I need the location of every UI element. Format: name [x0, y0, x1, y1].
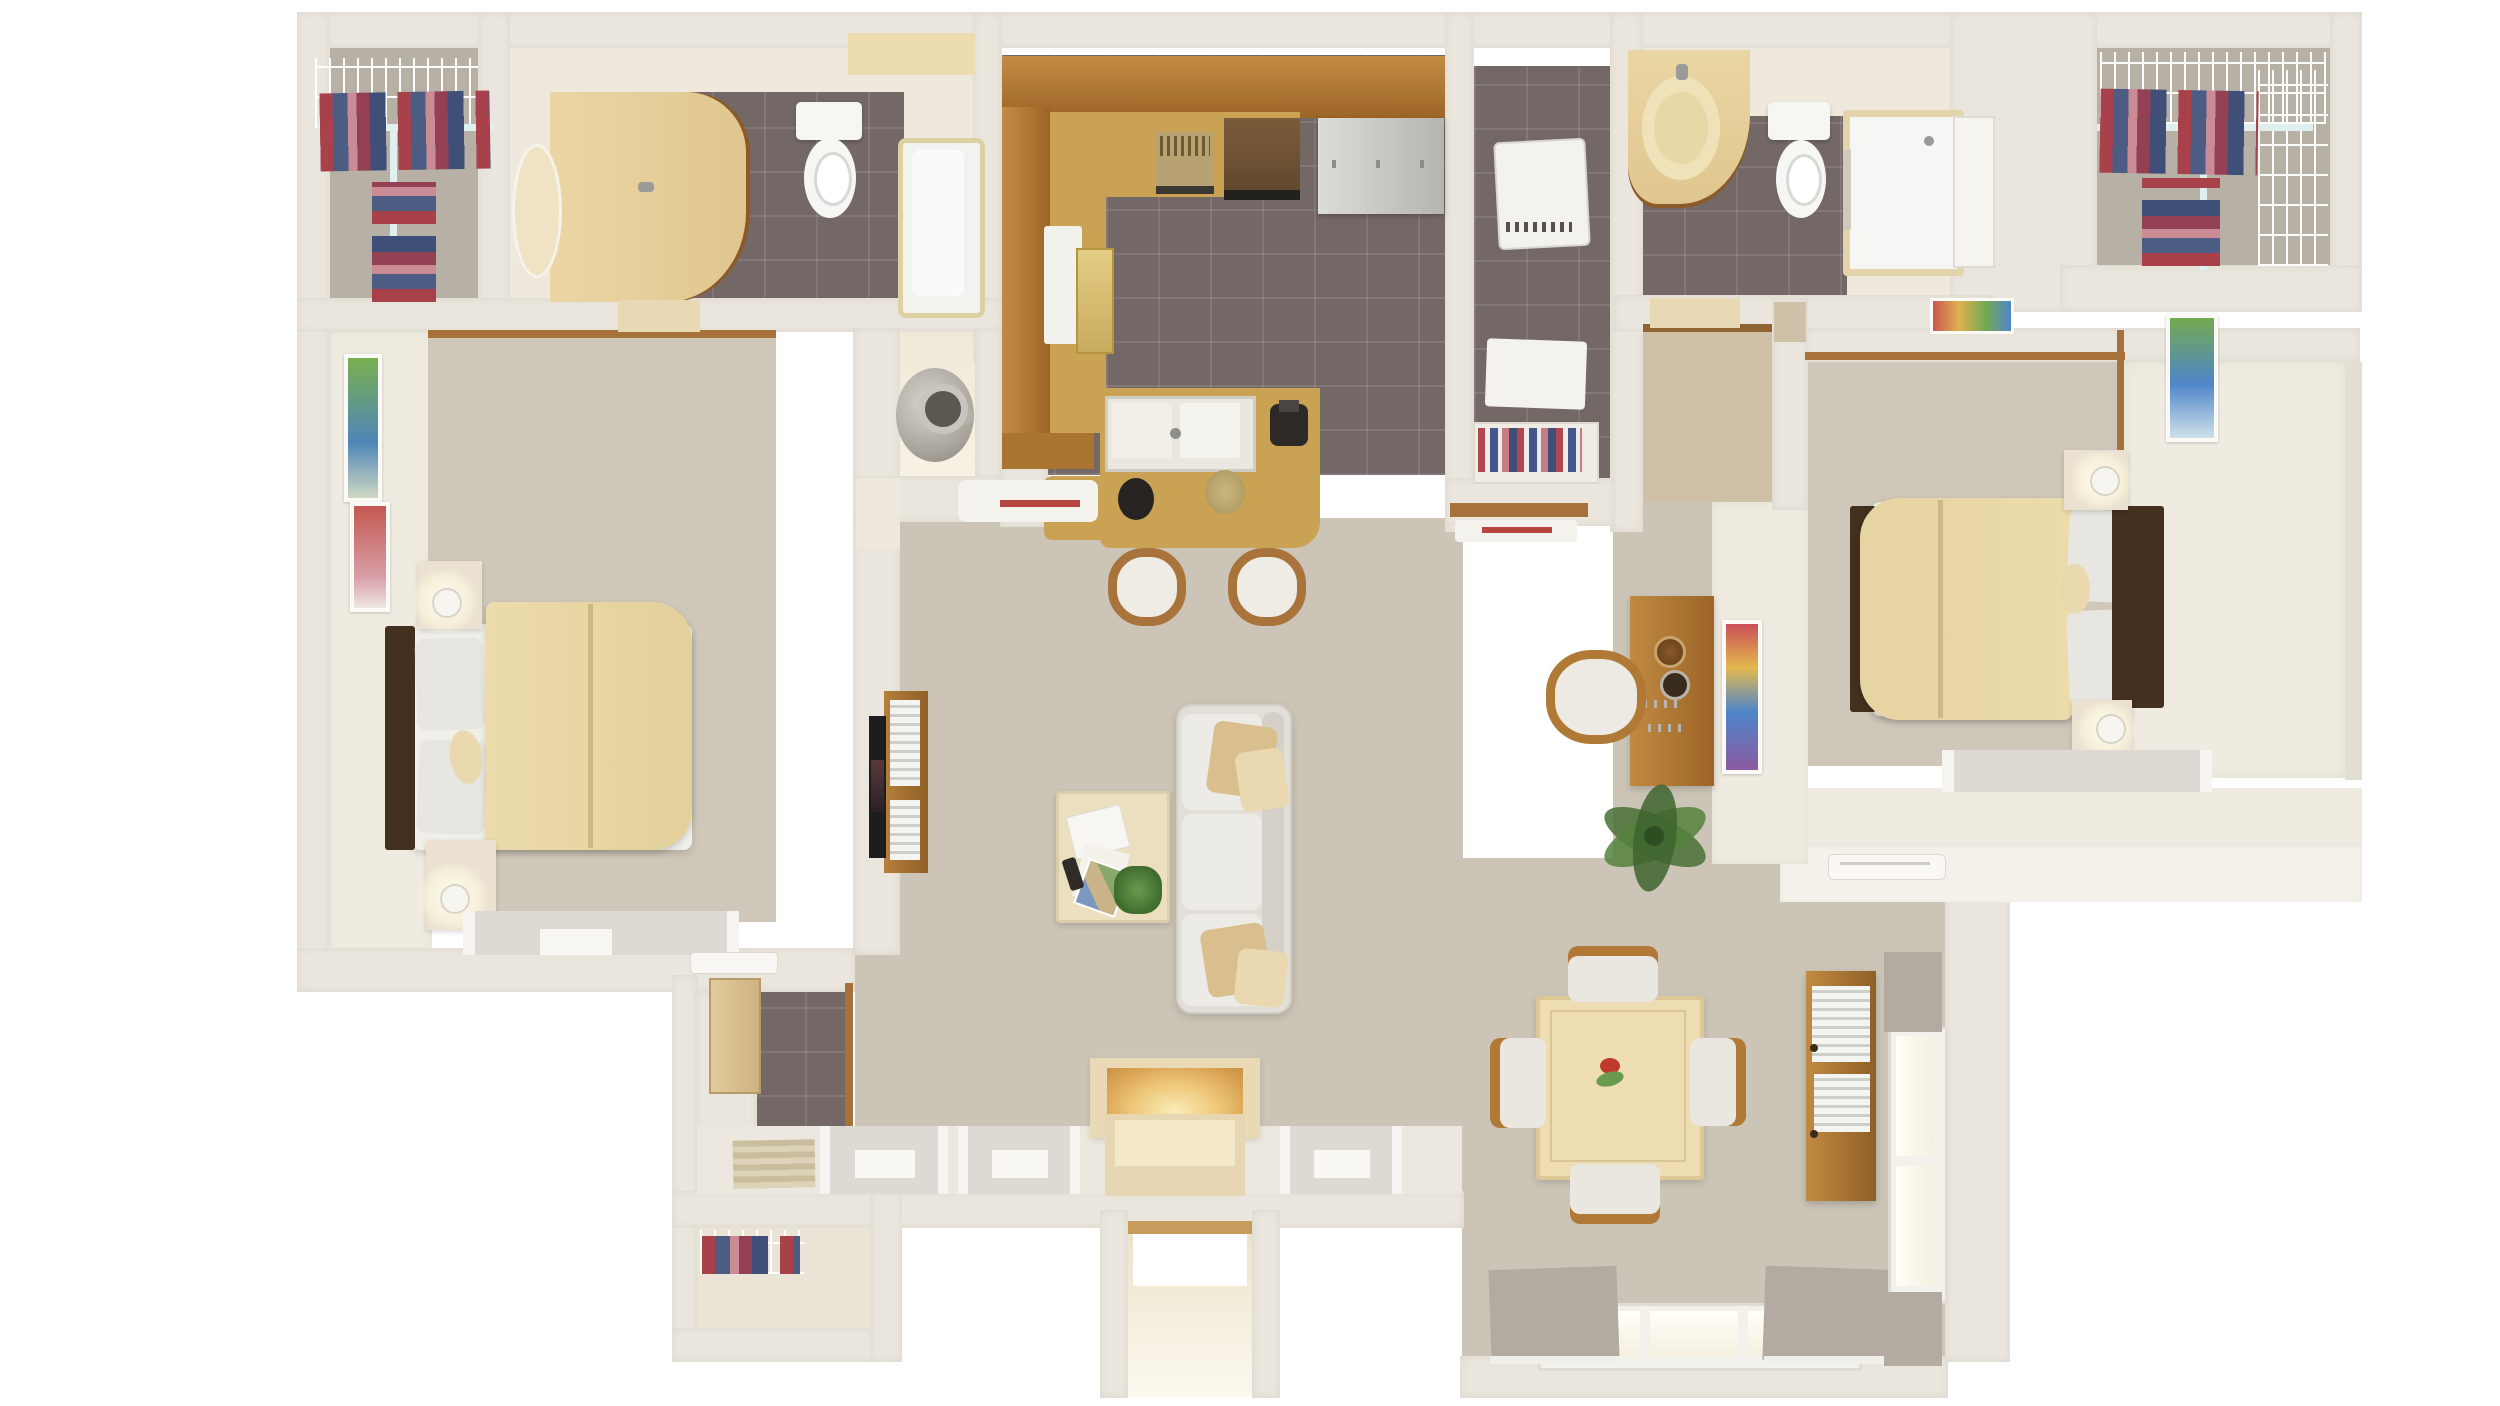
bath2-faucet: [1676, 64, 1688, 80]
laundry-threshold-stripe: [1482, 527, 1552, 533]
wall-closet3-right: [870, 1191, 902, 1362]
coffee-table-plant: [1114, 866, 1162, 914]
bedroom2-round-pillow: [2060, 564, 2090, 614]
bath1-toilet-seat: [814, 152, 852, 206]
kitchen-kettle: [1118, 478, 1154, 520]
bedroom2-blanket: [1860, 498, 2072, 720]
dining-curtain-left: [1488, 1266, 1619, 1364]
kitchen-barstool-1: [1108, 548, 1186, 626]
master-blanket-fold: [588, 604, 593, 848]
bedroom2-window-rail-r: [2200, 750, 2212, 792]
kitchen-fridge-handles: [1332, 160, 1428, 168]
laundry-washer-vents: [1506, 222, 1572, 232]
tv-console-books-1: [890, 700, 920, 786]
dining-bookshelf-books-2: [1814, 1074, 1870, 1132]
wall-closet1-bath1: [478, 12, 510, 332]
wall-closet2-bottom: [2060, 265, 2362, 312]
dining-chair-left: [1490, 1038, 1546, 1128]
master-window-sill: [540, 929, 612, 955]
south-window3-rail-r: [1392, 1126, 1402, 1194]
dining-curtain-rail-r: [1764, 1356, 1904, 1364]
ledge-tray: [1828, 854, 1946, 880]
bedroom2-window-rail-l: [1942, 750, 1954, 792]
kitchen-barstool-2: [1228, 548, 1306, 626]
laundry-washer: [1493, 138, 1591, 251]
master-window-rail-r: [727, 911, 739, 955]
kitchen-cabinets-left-base: [1002, 433, 1094, 469]
wall-alcove-left: [1100, 1210, 1128, 1398]
bath2-toilet-tank: [1768, 102, 1830, 140]
kitchen-sink-faucet: [1170, 428, 1181, 439]
wall-south-main: [672, 1191, 1464, 1228]
kitchen-stove-edge: [1224, 190, 1300, 200]
bedroom2-artwork-top: [1930, 298, 2014, 334]
laundry-tile-floor: [1474, 66, 1612, 482]
south-window2-rail-l: [958, 1126, 968, 1194]
master-lamp-2: [440, 884, 470, 914]
bath1-vanity-counter: [550, 92, 746, 302]
hall-artwork: [1722, 620, 1762, 774]
kitchen-sink-basin2: [1180, 403, 1240, 458]
trim-bedroom2-top: [1805, 352, 2125, 360]
master-wall-tray: [690, 952, 778, 974]
hall-desk-chair: [1546, 650, 1646, 744]
bath1-door-threshold: [618, 300, 700, 332]
closet2-wire-shelf-right: [2258, 70, 2328, 266]
kitchen-sink-basin1: [1112, 403, 1172, 458]
closet2-clothes-row: [2099, 89, 2258, 176]
kitchen-stove: [1224, 118, 1300, 198]
trim-entry-edge: [845, 983, 853, 1141]
fireplace-hearth-top: [1115, 1120, 1235, 1166]
wall-niche-right: [975, 328, 1002, 480]
hall-plant-center: [1644, 826, 1664, 846]
bedroom2-lamp-1: [2090, 466, 2120, 496]
bath1-toilet-tank: [796, 102, 862, 140]
closet2-clothes-col: [2142, 178, 2220, 266]
wall-alcove-right: [1252, 1210, 1280, 1398]
tv-console-books-2: [890, 800, 920, 860]
master-art-1: [344, 354, 382, 502]
kitchen-gold-cabinet: [1076, 248, 1114, 354]
entry-tile-floor: [753, 983, 845, 1141]
master-art-2: [350, 502, 390, 612]
kitchen-threshold-stripe: [1000, 500, 1080, 507]
south-window1-rail-r: [938, 1126, 948, 1194]
closet1-clothes-row: [319, 91, 490, 172]
dining-chair-bottom: [1570, 1164, 1660, 1224]
bath2-sink-inner: [1654, 92, 1708, 164]
sofa-pillow-cream-2: [1233, 948, 1289, 1009]
bath2-shower-door: [1843, 150, 1851, 230]
wall-nook-right: [1945, 896, 2010, 1362]
trim-laundry-base: [1450, 503, 1588, 517]
bedroom2-lamp-2: [2096, 714, 2126, 744]
south-window1-rail-l: [820, 1126, 830, 1194]
master-pillow-1: [414, 637, 485, 731]
niche-vase-mouth: [918, 384, 968, 434]
bedroom2-artwork: [2166, 314, 2218, 442]
dining-bookshelf-books-1: [1812, 986, 1870, 1062]
trim-master-top: [428, 330, 776, 338]
south-window3-sill: [1314, 1150, 1370, 1178]
dining-bookshelf-knob-1: [1810, 1044, 1818, 1052]
dining-curtain-rail-l: [1490, 1356, 1620, 1364]
bath2-door-threshold: [1650, 298, 1740, 328]
floor-plan-canvas: [0, 0, 2500, 1406]
dining-east-curtain-bottom: [1884, 1292, 1942, 1366]
dining-table-inner-line: [1550, 1010, 1686, 1162]
dining-south-window-pane-2: [1650, 1311, 1738, 1357]
sofa-cushion-2: [1182, 814, 1262, 910]
master-door-floor: [856, 478, 900, 548]
ledge-tray-line: [1840, 862, 1930, 865]
hallway-wood-floor: [1643, 330, 1772, 508]
kitchen-cabinets-left: [1002, 107, 1050, 433]
bath1-faucet: [638, 182, 654, 192]
wall-kitchen-right: [1445, 12, 1474, 532]
wall-bedroom2-right-outer: [2345, 362, 2362, 780]
kitchen-coffee-top: [1279, 400, 1299, 412]
desk-cutlery-2: [1648, 724, 1688, 732]
bath2-toilet-seat: [1786, 154, 1822, 206]
kitchen-cabinets-top: [1002, 56, 1445, 118]
bedroom2-blanket-fold: [1938, 500, 1943, 718]
desk-jar-2: [1660, 670, 1690, 700]
laundry-dryer: [1485, 338, 1587, 409]
kitchen-basket: [1205, 470, 1245, 514]
tv-screen-image: [871, 760, 884, 812]
bedroom2-headboard: [2112, 506, 2164, 708]
bath1-mirror: [512, 144, 562, 278]
master-window-rail-l: [463, 911, 475, 955]
front-door: [709, 978, 761, 1094]
bath2-door-leaf: [1953, 116, 1995, 268]
dining-bookshelf-knob-2: [1810, 1130, 1818, 1138]
alcove-glow: [1133, 1234, 1247, 1286]
dining-east-curtain-top: [1884, 952, 1942, 1032]
bedroom2-window-blinds: [1942, 750, 2212, 792]
bath1-tub-inner: [912, 150, 964, 296]
south-window1-sill: [855, 1150, 915, 1178]
laundry-shelf-items: [1478, 428, 1582, 472]
bath2-shower: [1843, 110, 1964, 276]
dining-chair-top: [1568, 946, 1658, 1002]
kitchen-microwave-vents: [1160, 136, 1210, 156]
closet3-clothes: [702, 1236, 800, 1274]
south-window2-sill: [992, 1150, 1048, 1178]
alcove-threshold: [1128, 1221, 1252, 1234]
dining-chair-right: [1690, 1038, 1746, 1126]
closet1-clothes-col: [372, 182, 436, 302]
sofa-pillow-cream-1: [1234, 747, 1290, 813]
desk-cutlery-1: [1644, 700, 1684, 708]
south-window2-rail-r: [1070, 1126, 1080, 1194]
master-lamp-1: [432, 588, 462, 618]
bath2-shower-head: [1924, 136, 1934, 146]
dining-east-window-pane-1: [1896, 1036, 1934, 1156]
master-bed-headboard: [385, 626, 415, 850]
dining-east-window-pane-2: [1896, 1166, 1934, 1286]
wall-laundry-bottom: [1445, 478, 1615, 526]
entry-door-mat: [733, 1139, 816, 1188]
bath1-tub-shelf: [848, 33, 975, 75]
dining-curtain-right: [1762, 1266, 1903, 1365]
south-window3-rail-l: [1280, 1126, 1290, 1194]
bedroom2-door-threshold: [1774, 302, 1806, 342]
desk-jar-1: [1654, 636, 1686, 668]
wall-bedroom2-south-band: [1808, 788, 2362, 848]
wall-closet3-bottom: [672, 1328, 902, 1362]
